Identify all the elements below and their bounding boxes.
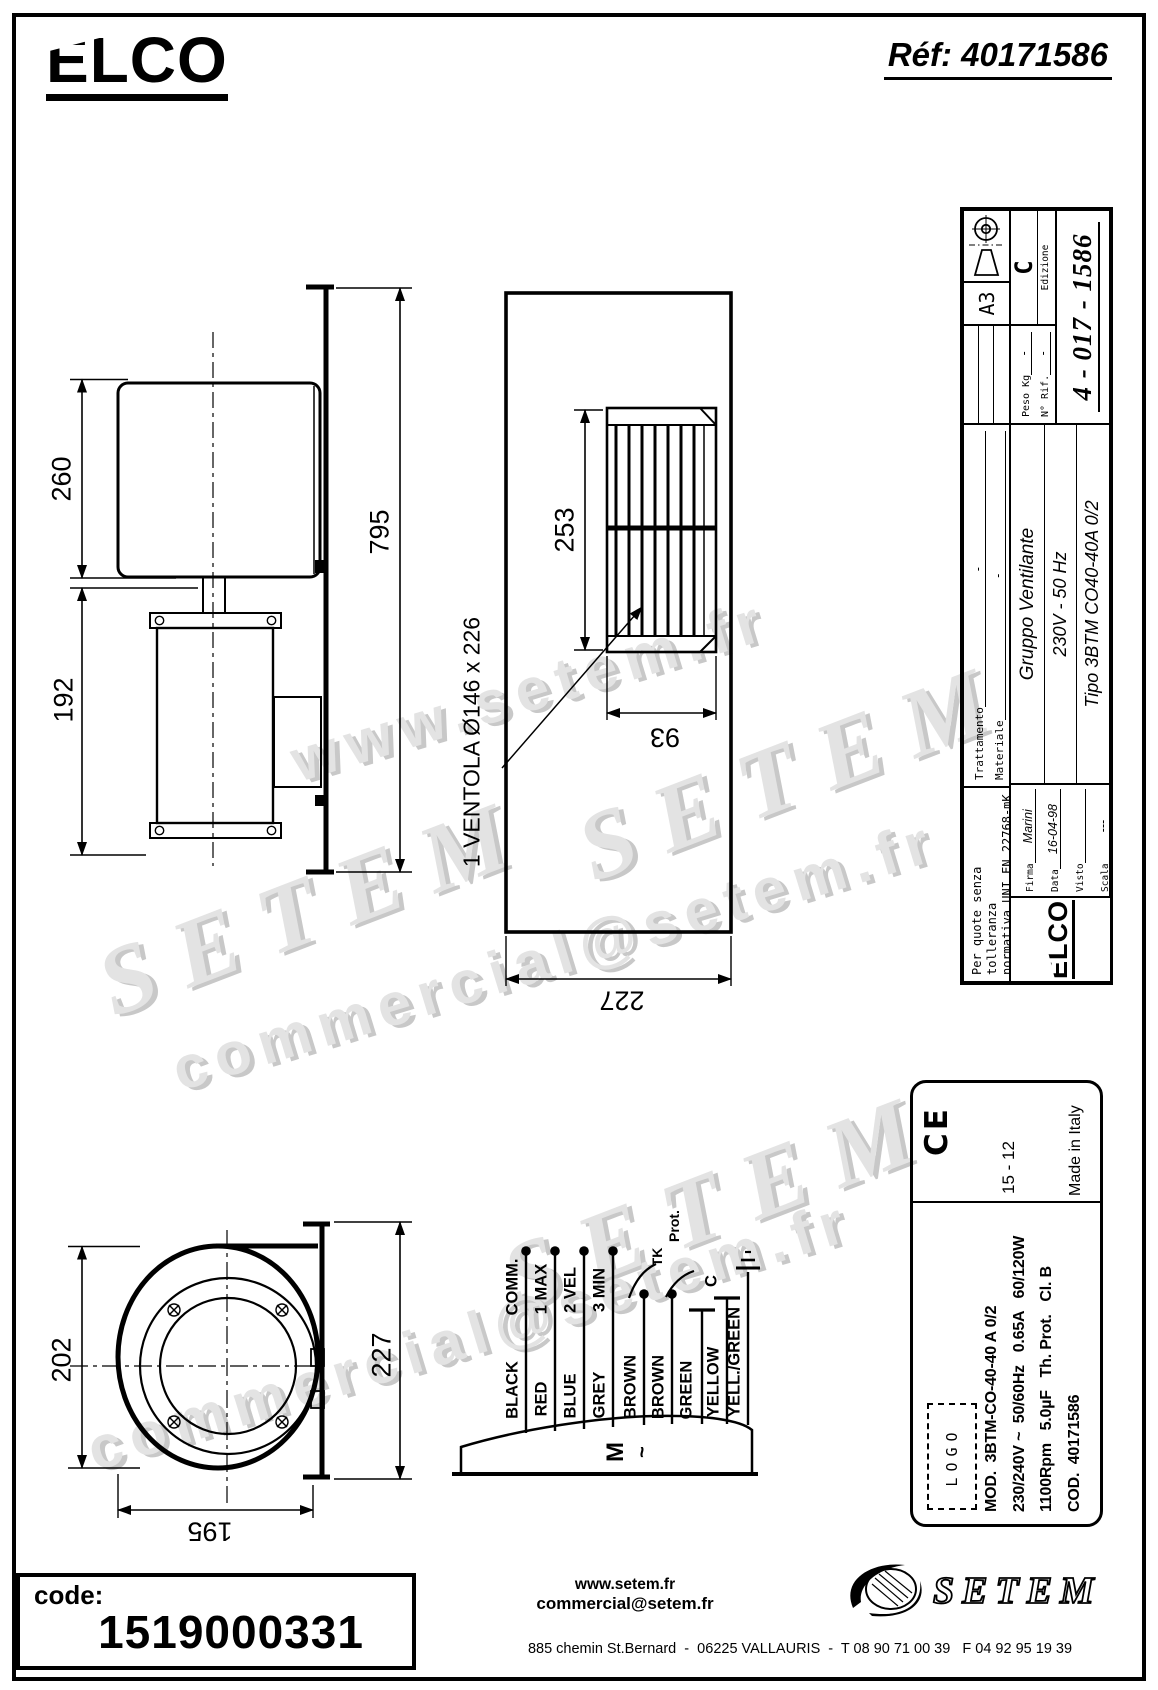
- code-box: code: 1519000331: [16, 1573, 416, 1670]
- front-view-drawing: [502, 293, 731, 986]
- wire-function-1max: 1 MAX: [533, 1264, 552, 1314]
- dim-front-width: 227: [599, 985, 644, 1016]
- firma-label: Firma: [1025, 863, 1036, 892]
- title-block-elco-text: ELCO: [1046, 900, 1072, 979]
- edition-value: C: [1011, 211, 1038, 324]
- thermal-protector-label2: Prot.: [666, 1210, 682, 1242]
- trattamento-label: Trattamento: [973, 707, 986, 780]
- elco-logo: ELCO: [46, 30, 228, 101]
- wire-color-brown1: BROWN: [622, 1355, 641, 1419]
- edition-label: Edizione: [1038, 211, 1053, 324]
- code-value: 1519000331: [20, 1605, 412, 1659]
- setem-logo-text: SETEM: [933, 1570, 1102, 1612]
- footer-address: 885 chemin St.Bernard - 06225 VALLAURIS …: [455, 1641, 1145, 1657]
- scala-value: ---: [1096, 789, 1111, 863]
- footer-contacts: www.setem.fr commercial@setem.fr: [450, 1576, 800, 1614]
- elco-logo-underline: [46, 94, 228, 101]
- materiale-label: Materiale: [993, 720, 1006, 780]
- motor-phase: ~: [632, 1446, 655, 1458]
- wire-color-grey: GREY: [591, 1372, 610, 1419]
- dim-top-width: 195: [187, 1516, 232, 1547]
- scala-label: Scala: [1100, 863, 1111, 892]
- wire-function-comm: COMM.: [504, 1259, 523, 1316]
- setem-logo: SETEM: [845, 1556, 1110, 1620]
- footer-website: www.setem.fr: [450, 1576, 800, 1594]
- title-block-elco-underline: [1072, 900, 1075, 979]
- label-motor-line: 1100Rpm 5.0µF Th. Prot. Cl. B: [1038, 1266, 1056, 1512]
- ground-symbol: [736, 1252, 760, 1268]
- projection-symbol-icon: [964, 212, 1008, 281]
- logo-placeholder-text: LOGO: [943, 1426, 961, 1486]
- dim-side-motor: 192: [49, 677, 80, 722]
- drawing-title-cell: Gruppo Ventilante 230V - 50 Hz Tipo 3BTM…: [1010, 424, 1110, 784]
- dim-grille-width: 93: [650, 722, 680, 753]
- rif-label: N° Rif.: [1040, 375, 1051, 417]
- weight-cell: Peso Kg - N° Rif. -: [1010, 325, 1056, 424]
- dim-top-depth: 202: [47, 1337, 78, 1382]
- rif-value: -: [1037, 332, 1051, 375]
- wire-color-yellow: YELLOW: [705, 1347, 724, 1418]
- wire-color-black: BLACK: [504, 1361, 523, 1419]
- drawing-voltage: 230V - 50 Hz: [1045, 425, 1077, 783]
- peso-value: -: [1018, 332, 1032, 375]
- label-model-line: MOD. 3BTM-CO-40-40 A 0/2: [983, 1306, 1001, 1512]
- dim-top-height: 227: [367, 1332, 398, 1377]
- title-block-elco-logo: ELCO: [1010, 897, 1110, 982]
- projection-symbol: [963, 210, 1010, 282]
- setem-globe-swoosh: [850, 1564, 921, 1616]
- drawing-title: Gruppo Ventilante: [1011, 425, 1045, 783]
- dim-grille-height: 253: [550, 507, 581, 552]
- wire-color-brown2: BROWN: [650, 1355, 669, 1419]
- label-code-line: COD. 40171586: [1066, 1395, 1084, 1512]
- tolerance-line1: Per quote senza tolleranza: [970, 788, 1000, 975]
- revision-cell: [963, 325, 1010, 424]
- footer-email: commercial@setem.fr: [450, 1594, 800, 1614]
- wire-color-yellgreen: YELL./GREEN: [726, 1307, 745, 1417]
- ce-mark: CE: [919, 1106, 955, 1156]
- wire-function-3min: 3 MIN: [591, 1268, 610, 1312]
- drawing-type: Tipo 3BTM CO40-40A 0/2: [1077, 425, 1108, 783]
- fan-note: 1 VENTOLA Ø146 x 226: [459, 617, 486, 867]
- peso-label: Peso Kg: [1021, 375, 1032, 417]
- visto-value: [1085, 789, 1086, 863]
- top-view-drawing: [68, 1222, 412, 1518]
- wire-color-blue: BLUE: [562, 1374, 581, 1419]
- edition-cell: C Edizione: [1010, 210, 1056, 325]
- wire-color-red: RED: [533, 1382, 552, 1417]
- data-label: Data: [1050, 869, 1061, 892]
- data-value: 16-04-98: [1046, 789, 1061, 869]
- made-in-italy: Made in Italy: [1067, 1105, 1085, 1196]
- datasheet-page: www.setem.fr SETEM SETEM commercial@sete…: [0, 0, 1158, 1690]
- signature-cell: Firma Marini Data 16-04-98 Visto Scala -…: [1010, 784, 1110, 897]
- material-cell: Trattamento - Materiale -: [963, 424, 1010, 787]
- materiale-value: -: [992, 431, 1006, 720]
- title-block: Per quote senza tolleranza normativa UNI…: [960, 207, 1113, 985]
- logo-placeholder-box: LOGO: [927, 1403, 977, 1510]
- wire-color-green: GREEN: [678, 1361, 697, 1420]
- drawing-number-cell: 4 - 017 - 1586: [1056, 210, 1110, 424]
- label-divider: [913, 1201, 1100, 1203]
- dim-side-housing: 260: [47, 456, 78, 501]
- label-electrical-line: 230/240V ~ 50/60Hz 0.65A 60/120W: [1011, 1236, 1029, 1512]
- thermal-protector-label: TK: [649, 1248, 665, 1267]
- trattamento-value: -: [972, 431, 986, 707]
- dim-side-total: 795: [365, 509, 396, 554]
- wire-function-2vel: 2 VEL: [562, 1267, 581, 1313]
- rating-label: LOGO MOD. 3BTM-CO-40-40 A 0/2 230/240V ~…: [910, 1080, 1103, 1527]
- reference-number: Réf: 40171586: [884, 36, 1112, 80]
- label-date-code: 15 - 12: [999, 1141, 1019, 1194]
- motor-label: M: [602, 1442, 630, 1462]
- capacitor-label: C: [703, 1275, 722, 1287]
- firma-value: Marini: [1021, 789, 1036, 863]
- tolerance-note: Per quote senza tolleranza normativa UNI…: [963, 787, 1010, 982]
- drawing-number: 4 - 017 - 1586: [1067, 222, 1100, 413]
- elco-logo-text: ELCO: [46, 30, 228, 91]
- visto-label: Visto: [1075, 863, 1086, 892]
- side-view-drawing: [70, 285, 412, 874]
- sheet-format: A3: [963, 282, 1010, 325]
